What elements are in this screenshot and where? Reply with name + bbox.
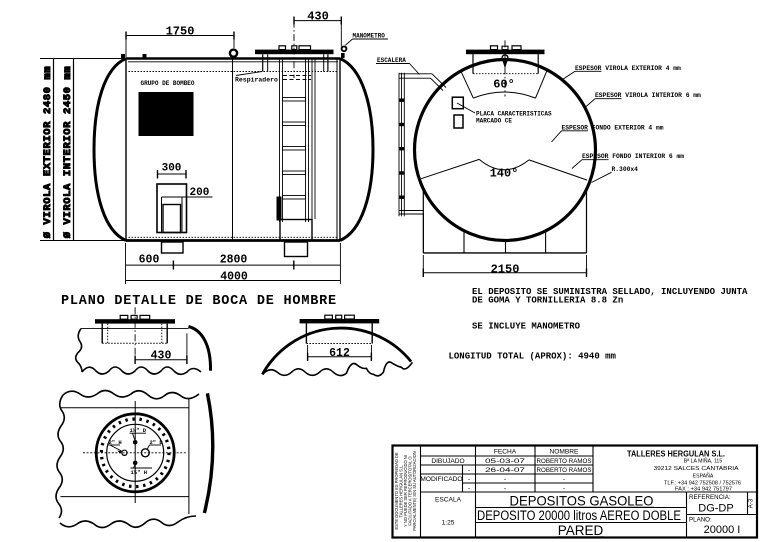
- svg-text:NOMBRE: NOMBRE: [550, 449, 580, 456]
- svg-text:1¼" H: 1¼" H: [131, 469, 148, 476]
- svg-text:430: 430: [307, 9, 329, 23]
- svg-text:300: 300: [162, 163, 182, 175]
- svg-text:-: -: [468, 485, 470, 492]
- svg-text:REFERENCIA:: REFERENCIA:: [689, 494, 731, 501]
- svg-text:DG-DP: DG-DP: [698, 503, 733, 515]
- svg-text:Ø VIROLA EXTERIOR 2480 mm: Ø VIROLA EXTERIOR 2480 mm: [42, 66, 54, 239]
- svg-text:-: -: [504, 476, 506, 483]
- svg-text:1:25: 1:25: [442, 520, 455, 527]
- svg-text:DE GOMA Y TORNILLERIA 8.8 Zn: DE GOMA Y TORNILLERIA 8.8 Zn: [472, 296, 623, 306]
- svg-text:PARED: PARED: [558, 523, 604, 538]
- svg-text:PLACA CARACTERISTICAS: PLACA CARACTERISTICAS: [476, 111, 552, 118]
- svg-text:SE INCLUYE MANOMETRO: SE INCLUYE MANOMETRO: [472, 322, 581, 332]
- svg-text:-: -: [504, 485, 506, 492]
- svg-text:20000 I: 20000 I: [704, 524, 741, 536]
- svg-text:GRUPO DE BOMBEO: GRUPO DE BOMBEO: [141, 80, 195, 87]
- svg-text:430: 430: [151, 350, 172, 363]
- svg-text:600: 600: [139, 254, 160, 267]
- svg-text:4000: 4000: [220, 271, 248, 284]
- svg-text:ESPESOR FONDO EXTERIOR 4 mm: ESPESOR FONDO EXTERIOR 4 mm: [562, 124, 664, 131]
- svg-text:-: -: [563, 485, 565, 492]
- svg-text:ESPESOR VIROLA EXTERIOR 4 mm: ESPESOR VIROLA EXTERIOR 4 mm: [575, 65, 681, 72]
- svg-text:39212 SALCES CANTABRIA: 39212 SALCES CANTABRIA: [654, 466, 740, 472]
- svg-text:MANOMETRO: MANOMETRO: [353, 33, 386, 40]
- svg-text:FAX : +34 942 751797: FAX : +34 942 751797: [675, 487, 732, 493]
- svg-text:PARCIALMENTE) SIN SU AUTORIZAC: PARCIALMENTE) SIN SU AUTORIZACION: [412, 451, 417, 531]
- svg-text:LONGITUD TOTAL (APROX): 4940 m: LONGITUD TOTAL (APROX): 4940 mm: [449, 352, 617, 362]
- svg-text:ESPAÑA: ESPAÑA: [693, 472, 714, 479]
- svg-text:MODIFICADO: MODIFICADO: [420, 476, 462, 483]
- svg-text:Respiradero: Respiradero: [235, 77, 278, 84]
- svg-text:A-3: A-3: [748, 498, 755, 508]
- svg-text:DIBUJADO: DIBUJADO: [431, 458, 464, 465]
- svg-text:DEPOSITO 20000 litros AEREO DO: DEPOSITO 20000 litros AEREO DOBLE: [477, 508, 681, 523]
- svg-text:1750: 1750: [166, 25, 195, 39]
- svg-text:PLANO:: PLANO:: [689, 517, 712, 524]
- svg-text:05-03-07: 05-03-07: [485, 458, 525, 465]
- svg-text:140°: 140°: [490, 167, 519, 181]
- svg-text:ROBERTO RAMOS: ROBERTO RAMOS: [537, 458, 593, 465]
- svg-text:TALLERES HERGULAN S.L.: TALLERES HERGULAN S.L.: [627, 449, 725, 458]
- svg-text:ESPESOR VIROLA INTERIOR 6 mm: ESPESOR VIROLA INTERIOR 6 mm: [595, 92, 701, 99]
- svg-text:ESCALERA: ESCALERA: [377, 57, 406, 64]
- svg-text:60°: 60°: [493, 78, 515, 92]
- svg-text:-: -: [468, 476, 470, 483]
- svg-text:DEPOSITOS GASOLEO: DEPOSITOS GASOLEO: [510, 493, 654, 509]
- svg-text:26-04-07: 26-04-07: [485, 467, 525, 474]
- svg-text:Bª LA MIÑA, 115: Bª LA MIÑA, 115: [684, 457, 723, 464]
- svg-text:612: 612: [329, 347, 350, 360]
- svg-text:-: -: [468, 467, 470, 474]
- svg-text:ROBERTO RAMOS: ROBERTO RAMOS: [537, 467, 593, 474]
- svg-text:MARCADO CE: MARCADO CE: [476, 118, 512, 125]
- svg-text:PLANO DETALLE DE BOCA DE HOMBR: PLANO DETALLE DE BOCA DE HOMBRE: [61, 294, 337, 309]
- svg-text:2800: 2800: [220, 254, 248, 267]
- svg-text:Ø VIROLA INTERIOR 2450 mm: Ø VIROLA INTERIOR 2450 mm: [62, 66, 74, 239]
- svg-text:ESCALA: ESCALA: [435, 497, 462, 504]
- svg-text:2150: 2150: [491, 262, 520, 276]
- svg-text:ESPESOR FONDO INTERIOR 6 mm: ESPESOR FONDO INTERIOR 6 mm: [582, 153, 684, 160]
- svg-text:R.300x4: R.300x4: [612, 166, 639, 173]
- svg-text:200: 200: [190, 187, 210, 199]
- svg-text:FECHA: FECHA: [494, 449, 517, 456]
- svg-text:-: -: [563, 476, 565, 483]
